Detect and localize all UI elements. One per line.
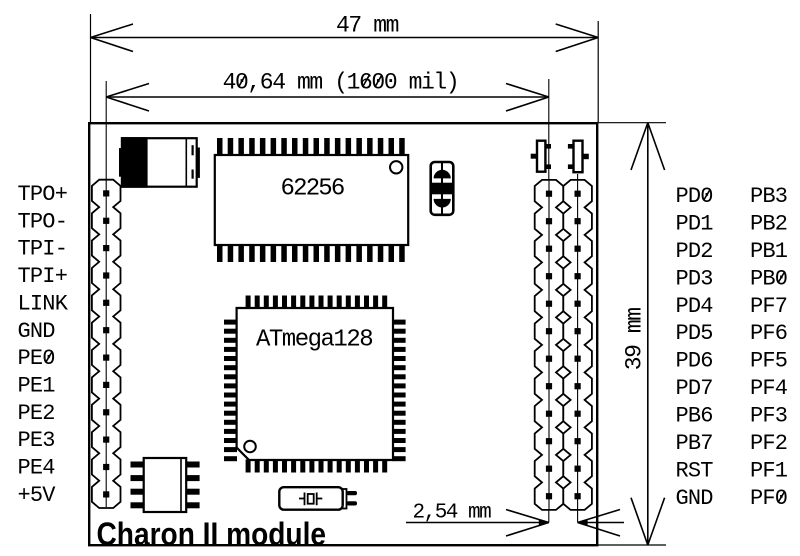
svg-text:PE0: PE0: [18, 346, 55, 371]
svg-text:GND: GND: [676, 486, 714, 511]
svg-text:PE2: PE2: [18, 401, 55, 426]
svg-text:39 mm: 39 mm: [622, 308, 648, 371]
svg-text:TPO-: TPO-: [18, 209, 68, 234]
svg-text:47 mm: 47 mm: [336, 13, 399, 39]
svg-text:PF4: PF4: [750, 376, 788, 401]
svg-text:PD6: PD6: [676, 349, 713, 374]
svg-text:TPO+: TPO+: [18, 182, 68, 207]
svg-text:PB2: PB2: [750, 211, 787, 236]
svg-text:PF3: PF3: [750, 404, 787, 429]
svg-text:PD0: PD0: [676, 184, 713, 209]
svg-text:62256: 62256: [281, 176, 344, 203]
svg-text:PB6: PB6: [676, 404, 713, 429]
svg-text:PB7: PB7: [676, 431, 713, 456]
svg-text:PB3: PB3: [750, 184, 787, 209]
svg-text:Charon II module: Charon II module: [97, 516, 327, 552]
svg-text:TPI-: TPI-: [18, 237, 68, 262]
svg-text:PF0: PF0: [750, 486, 787, 511]
svg-text:GND: GND: [18, 319, 56, 344]
svg-text:PD7: PD7: [676, 376, 713, 401]
svg-text:LINK: LINK: [18, 291, 69, 316]
svg-text:PF6: PF6: [750, 321, 787, 346]
svg-text:PF2: PF2: [750, 431, 787, 456]
svg-text:PF1: PF1: [750, 458, 788, 483]
svg-text:PB0: PB0: [750, 266, 787, 291]
svg-text:PF7: PF7: [750, 294, 787, 319]
svg-text:PD5: PD5: [676, 321, 713, 346]
svg-text:PE4: PE4: [18, 456, 56, 481]
svg-text:+5V: +5V: [18, 483, 57, 508]
svg-text:PE1: PE1: [18, 374, 56, 399]
svg-text:2,54 mm: 2,54 mm: [413, 502, 492, 525]
svg-text:ATmega128: ATmega128: [256, 327, 372, 354]
svg-text:RST: RST: [676, 458, 714, 483]
svg-text:PF5: PF5: [750, 349, 787, 374]
svg-text:40,64 mm (1600 mil): 40,64 mm (1600 mil): [223, 70, 459, 96]
svg-text:PE3: PE3: [18, 428, 55, 453]
svg-text:PB1: PB1: [750, 239, 788, 264]
svg-text:PD2: PD2: [676, 239, 713, 264]
svg-text:PD1: PD1: [676, 211, 714, 236]
svg-text:PD3: PD3: [676, 266, 713, 291]
svg-text:PD4: PD4: [676, 294, 714, 319]
svg-text:TPI+: TPI+: [18, 264, 68, 289]
